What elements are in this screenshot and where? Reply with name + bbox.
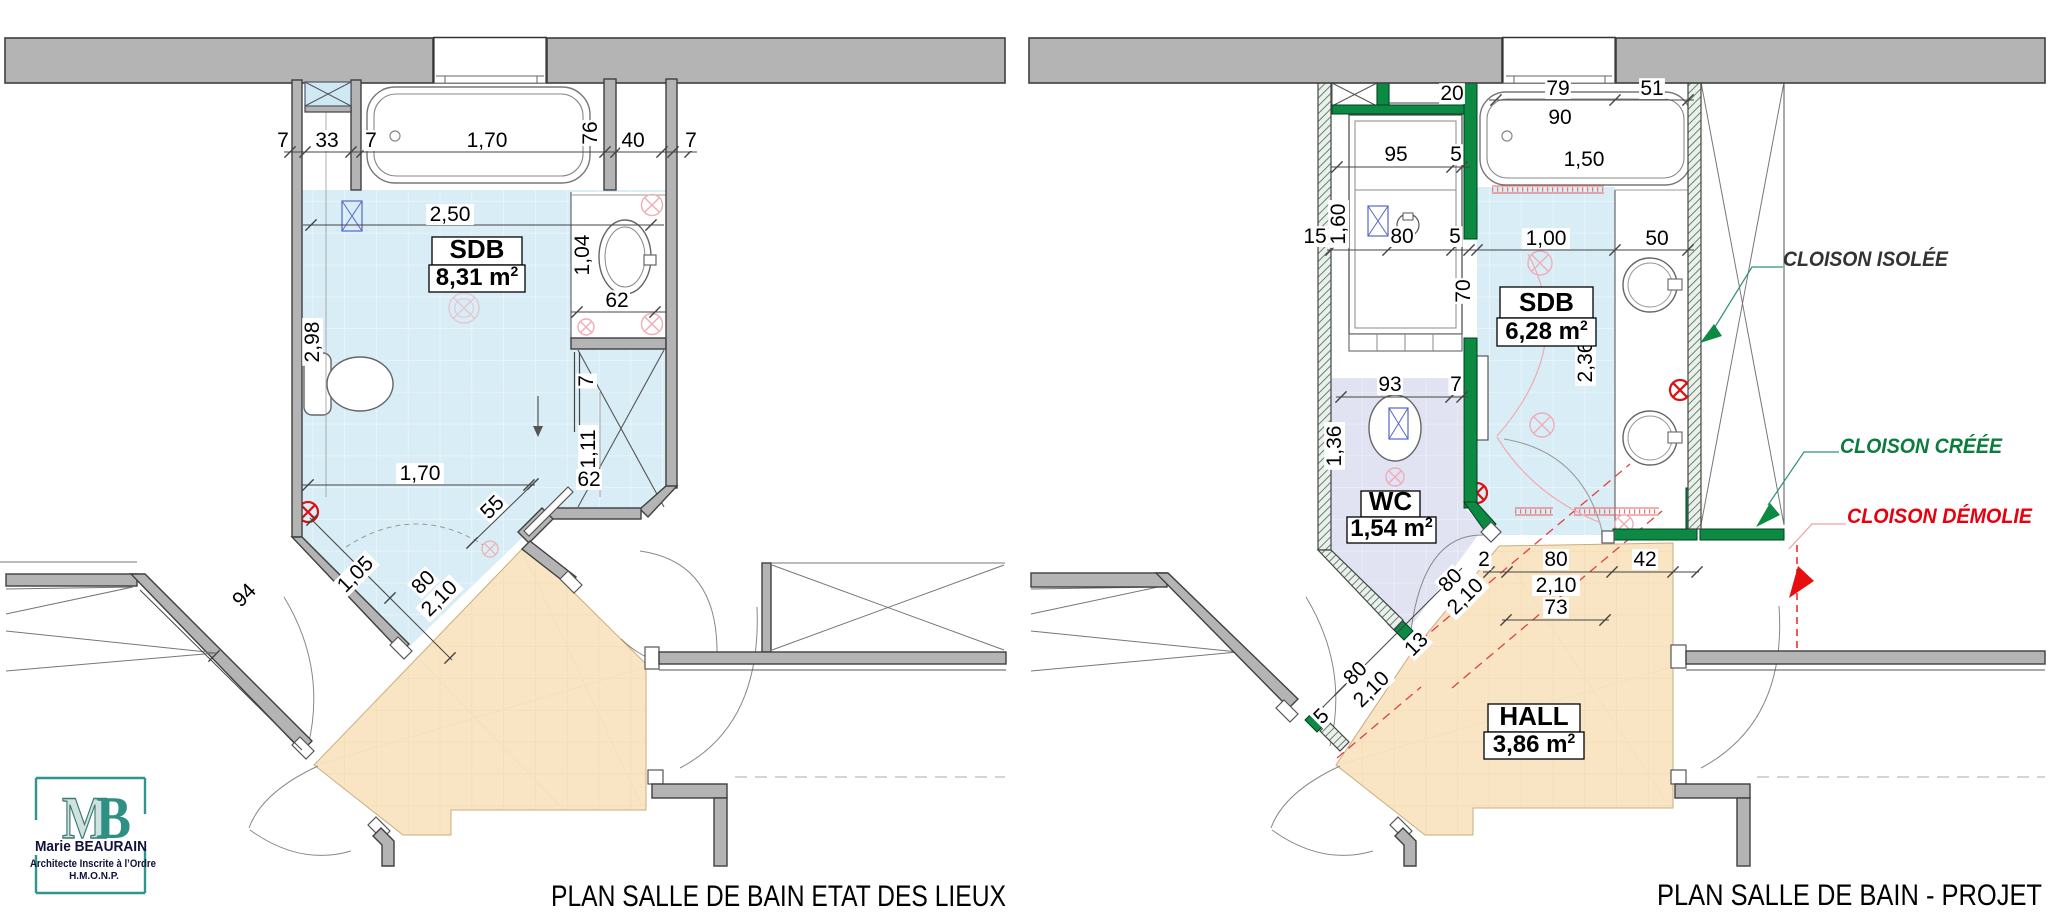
svg-text:40: 40: [621, 129, 644, 152]
svg-text:H.M.O.N.P.: H.M.O.N.P.: [69, 871, 119, 882]
svg-text:7: 7: [575, 375, 598, 387]
svg-text:5: 5: [1449, 225, 1461, 248]
svg-text:42: 42: [1633, 548, 1656, 571]
svg-text:1,00: 1,00: [1526, 227, 1567, 250]
svg-text:2,10: 2,10: [1536, 574, 1577, 597]
svg-text:20: 20: [1440, 82, 1463, 105]
svg-text:95: 95: [1384, 143, 1407, 166]
svg-text:SDB: SDB: [1519, 287, 1574, 317]
svg-text:PLAN SALLE DE BAIN - PROJET: PLAN SALLE DE BAIN - PROJET: [1657, 879, 2042, 912]
svg-text:33: 33: [315, 129, 338, 152]
svg-text:80: 80: [1544, 548, 1567, 571]
svg-text:6,28 m2: 6,28 m2: [1505, 317, 1588, 345]
svg-text:7: 7: [1450, 373, 1462, 396]
svg-text:2: 2: [1478, 548, 1490, 571]
svg-text:PLAN SALLE DE BAIN ETAT DES LI: PLAN SALLE DE BAIN ETAT DES LIEUX: [551, 880, 1006, 913]
svg-text:2,36: 2,36: [1574, 342, 1597, 383]
svg-text:3,86 m2: 3,86 m2: [1493, 730, 1576, 758]
svg-text:5: 5: [1450, 143, 1462, 166]
svg-text:CLOISON ISOLÉE: CLOISON ISOLÉE: [1783, 248, 1949, 271]
svg-text:73: 73: [1544, 596, 1567, 619]
svg-text:2,50: 2,50: [430, 203, 471, 226]
svg-text:80: 80: [1390, 225, 1413, 248]
svg-text:1,54 m2: 1,54 m2: [1350, 514, 1433, 542]
svg-text:2,98: 2,98: [301, 322, 324, 363]
svg-text:1,60: 1,60: [1327, 204, 1350, 245]
svg-text:93: 93: [1378, 373, 1401, 396]
svg-text:Architecte Inscrite à l’Ordre: Architecte Inscrite à l’Ordre: [30, 858, 156, 870]
svg-text:1,70: 1,70: [400, 462, 441, 485]
svg-text:76: 76: [579, 121, 602, 144]
svg-text:1,04: 1,04: [571, 234, 594, 275]
svg-text:62: 62: [577, 468, 600, 491]
svg-text:90: 90: [1548, 106, 1571, 129]
svg-text:1,36: 1,36: [1323, 426, 1346, 467]
svg-text:SDB: SDB: [450, 234, 505, 264]
svg-text:7: 7: [365, 129, 377, 152]
svg-text:7: 7: [685, 129, 697, 152]
svg-text:CLOISON CRÉÉE: CLOISON CRÉÉE: [1840, 435, 2003, 458]
svg-text:15: 15: [1303, 225, 1326, 248]
svg-text:7: 7: [277, 129, 289, 152]
svg-text:8,31 m2: 8,31 m2: [436, 263, 519, 291]
svg-text:CLOISON DÉMOLIE: CLOISON DÉMOLIE: [1847, 505, 2033, 528]
svg-text:WC: WC: [1369, 486, 1413, 516]
svg-text:HALL: HALL: [1499, 701, 1568, 731]
svg-text:1,70: 1,70: [467, 129, 508, 152]
svg-text:51: 51: [1640, 77, 1663, 100]
svg-text:70: 70: [1452, 279, 1475, 302]
svg-text:1,11: 1,11: [577, 429, 600, 468]
svg-text:1,50: 1,50: [1564, 148, 1605, 171]
svg-text:50: 50: [1645, 227, 1668, 250]
svg-text:Marie BEAURAIN: Marie BEAURAIN: [35, 839, 147, 855]
svg-text:79: 79: [1546, 77, 1569, 100]
svg-text:62: 62: [605, 289, 628, 312]
